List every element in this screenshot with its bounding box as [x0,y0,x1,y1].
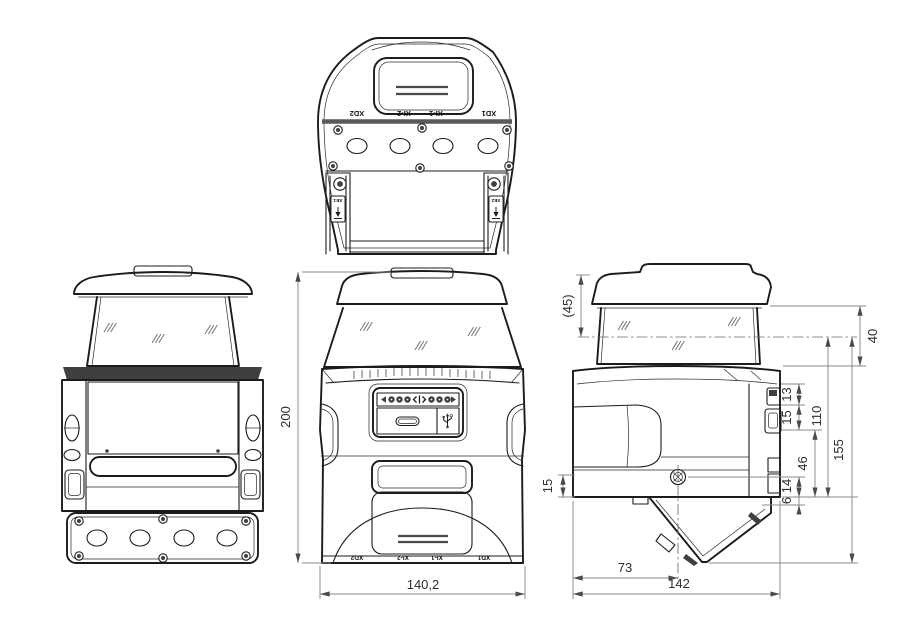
dim-base-step-label: 6 [779,497,794,504]
dim-screw-offset-label: 73 [618,560,632,575]
canvas [0,0,924,644]
top-connector-label-2: XI-2 [397,109,411,118]
front-connector-label-1: XD2 [350,554,363,561]
front-connector-label-4: XD1 [477,554,490,561]
earth-label-2: XE2 [491,197,500,203]
top-connector-label-1: XD2 [350,109,365,118]
earth-label-1: XE1 [333,197,342,203]
dim-screw-to-base-label: 14 [779,479,794,493]
dim-height-label: 200 [278,406,293,428]
dim-width-label: 140,2 [407,577,440,592]
dim-front-step-label: 15 [540,479,555,493]
dim-conn-top-label: 13 [779,387,794,401]
front-connector-label-2: XI-2 [397,554,409,561]
dim-hood-height-label: 40 [865,329,880,343]
dim-conn-mid-label: 15 [779,410,794,424]
dim-lower-body-label: 46 [795,456,810,470]
top-connector-label-4: XD1 [482,109,497,118]
dim-depth-label: 142 [668,576,690,591]
dark-band [63,367,262,380]
front-connector-label-3: XI-1 [431,554,443,561]
dim-scan-to-base-label: 110 [809,406,824,427]
dim-overall-label: 155 [831,439,846,461]
dimension-drawing: XD2 XI-2 XI-1 XD1 XE1 XE2 [0,0,924,644]
dim-cap-height-label: (45) [560,294,575,317]
top-connector-label-3: XI-1 [429,109,443,118]
